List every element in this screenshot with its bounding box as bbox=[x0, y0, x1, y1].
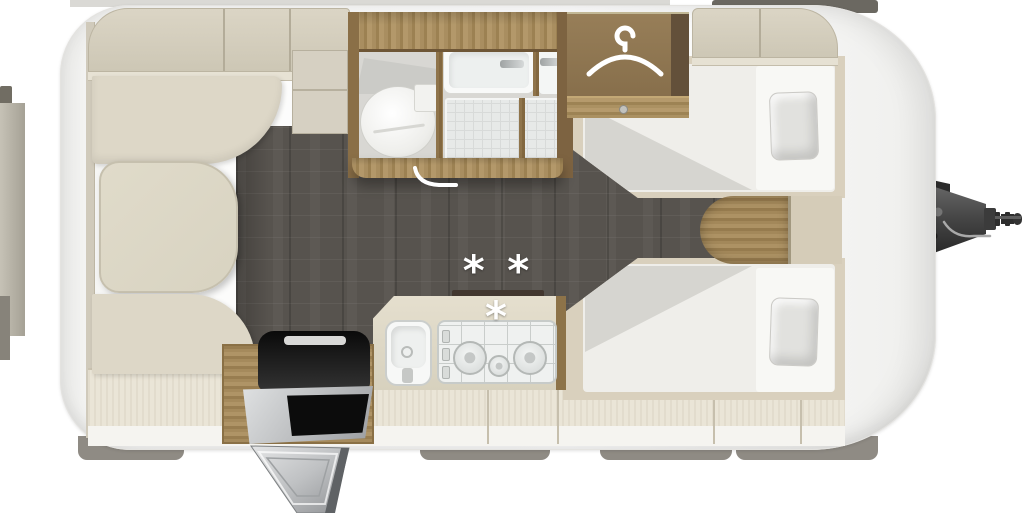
overhead-lockers-bed bbox=[692, 8, 838, 58]
burner-icon bbox=[513, 341, 547, 375]
furniture-front-panel bbox=[88, 426, 845, 446]
burner-cap bbox=[464, 352, 475, 363]
burner-cap bbox=[496, 363, 503, 370]
bathroom-cabinet bbox=[348, 12, 567, 52]
side-cabinet bbox=[292, 50, 348, 134]
hob-knob bbox=[442, 366, 450, 379]
hob-knob bbox=[442, 348, 450, 361]
coolbox-open-lid bbox=[243, 386, 373, 444]
asterisk-marking: * * * bbox=[448, 248, 548, 296]
hanger-icon bbox=[584, 24, 666, 84]
bedside-step bbox=[700, 196, 790, 264]
kitchen-sink bbox=[385, 320, 432, 386]
bathroom-partition bbox=[436, 44, 443, 172]
faucet-icon bbox=[500, 60, 524, 68]
locker-divider bbox=[289, 9, 291, 71]
bathroom-wall-left bbox=[348, 12, 359, 178]
hob-knob bbox=[442, 330, 450, 343]
rear-fitting-lower bbox=[0, 296, 10, 360]
burner-icon bbox=[453, 341, 487, 375]
drawer-knob bbox=[619, 105, 628, 114]
wardrobe-drawer bbox=[567, 96, 689, 118]
coolbox-interior bbox=[287, 394, 369, 436]
sink-drain bbox=[401, 346, 413, 358]
burner-icon bbox=[488, 355, 510, 377]
cabinet-divider bbox=[293, 89, 347, 91]
pillow bbox=[769, 91, 819, 161]
basin-bowl bbox=[449, 52, 529, 88]
bedside-shelf bbox=[788, 196, 842, 264]
pillow bbox=[769, 297, 819, 367]
caravan-floorplan: * * * bbox=[0, 0, 1024, 513]
locker-shelf-lip bbox=[692, 58, 838, 66]
exterior-access-flap bbox=[245, 444, 357, 513]
toilet-cistern bbox=[414, 84, 438, 112]
burner-cap bbox=[524, 352, 535, 363]
kitchen-end-panel bbox=[556, 296, 566, 390]
dinette-table bbox=[99, 161, 238, 293]
sink-tap bbox=[402, 368, 413, 383]
coolbox bbox=[258, 331, 370, 391]
door-swing-icon bbox=[412, 166, 460, 194]
locker-divider bbox=[759, 9, 761, 57]
toilet-lid-seam bbox=[373, 123, 425, 133]
washbasin bbox=[443, 46, 535, 94]
coolbox-handle bbox=[284, 336, 346, 345]
locker-divider bbox=[223, 9, 225, 71]
